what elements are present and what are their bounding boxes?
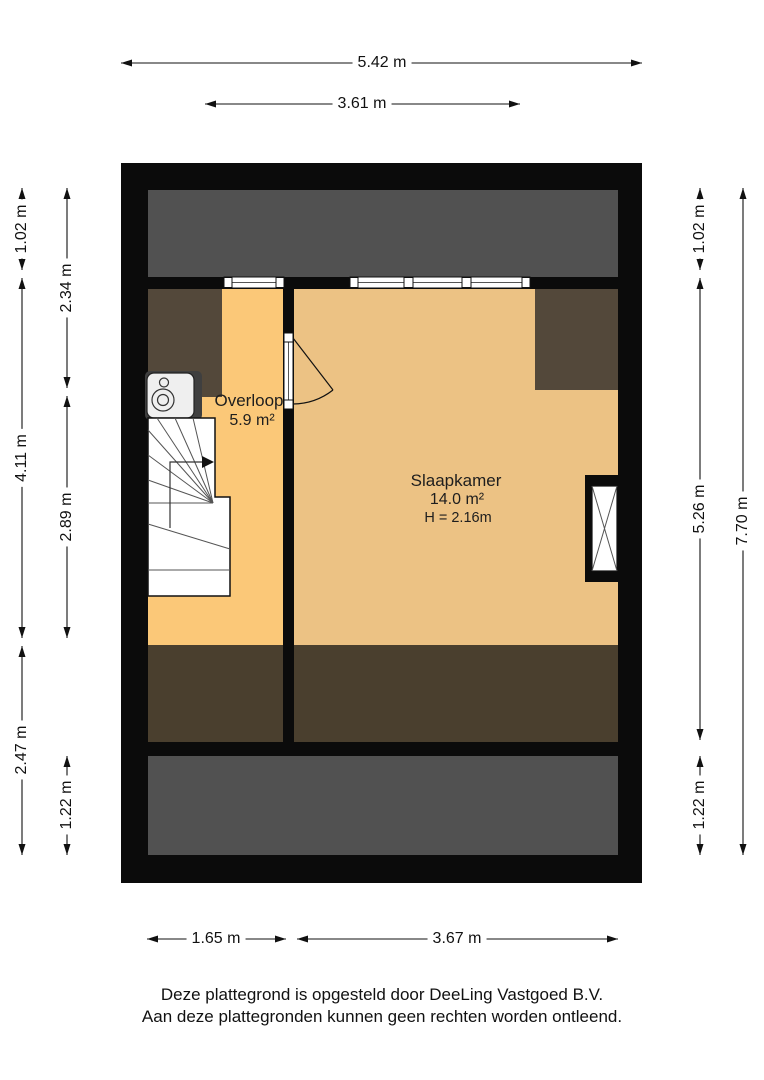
footer-disclaimer: Deze plattegrond is opgesteld door DeeLi… — [0, 984, 764, 1028]
dim-label-bottom-right: 3.67 m — [428, 930, 487, 948]
roof-void-bottom — [148, 756, 618, 855]
dim-label-top-total: 5.42 m — [353, 54, 412, 72]
dim-label-left-outer-bottom: 2.47 m — [13, 721, 31, 780]
low-headroom-right — [535, 289, 618, 390]
dim-label-right-inner-mid: 5.26 m — [691, 480, 709, 539]
floor-plan-page: 5.42 m 3.61 m 1.65 m 3.67 m 1.02 m 4.11 … — [0, 0, 764, 1080]
window-overloop — [224, 277, 284, 288]
footer-line-2: Aan deze plattegronden kunnen geen recht… — [0, 1006, 764, 1028]
shaft-window — [585, 475, 618, 582]
overloop-area-label: 5.9 m² — [229, 412, 274, 430]
dim-label-top-inner: 3.61 m — [333, 95, 392, 113]
dim-label-right-outer: 7.70 m — [734, 492, 752, 551]
floor-plan-drawing — [0, 0, 764, 1080]
dim-label-left-outer-mid: 4.11 m — [13, 429, 31, 487]
dim-label-right-inner-bottom: 1.22 m — [691, 776, 709, 835]
slaapkamer-name-label: Slaapkamer — [411, 471, 502, 491]
dim-label-left-inner-top: 2.34 m — [58, 259, 76, 318]
footer-line-1: Deze plattegrond is opgesteld door DeeLi… — [0, 984, 764, 1006]
dim-label-bottom-left: 1.65 m — [187, 930, 246, 948]
slaapkamer-area-label: 14.0 m² — [430, 491, 484, 509]
dim-label-left-outer-top: 1.02 m — [13, 200, 31, 259]
slaapkamer-height-label: H = 2.16m — [424, 510, 491, 526]
low-headroom-bottom-right — [294, 645, 618, 742]
low-headroom-bottom-left — [148, 645, 283, 742]
dim-label-right-inner-top: 1.02 m — [691, 200, 709, 259]
dim-label-left-inner-bottom: 1.22 m — [58, 776, 76, 835]
dim-label-left-inner-mid: 2.89 m — [58, 488, 76, 547]
roof-void-top — [148, 190, 618, 277]
overloop-name-label: Overloop — [215, 391, 284, 411]
boiler-unit — [145, 371, 202, 420]
window-slaapkamer — [350, 277, 530, 288]
